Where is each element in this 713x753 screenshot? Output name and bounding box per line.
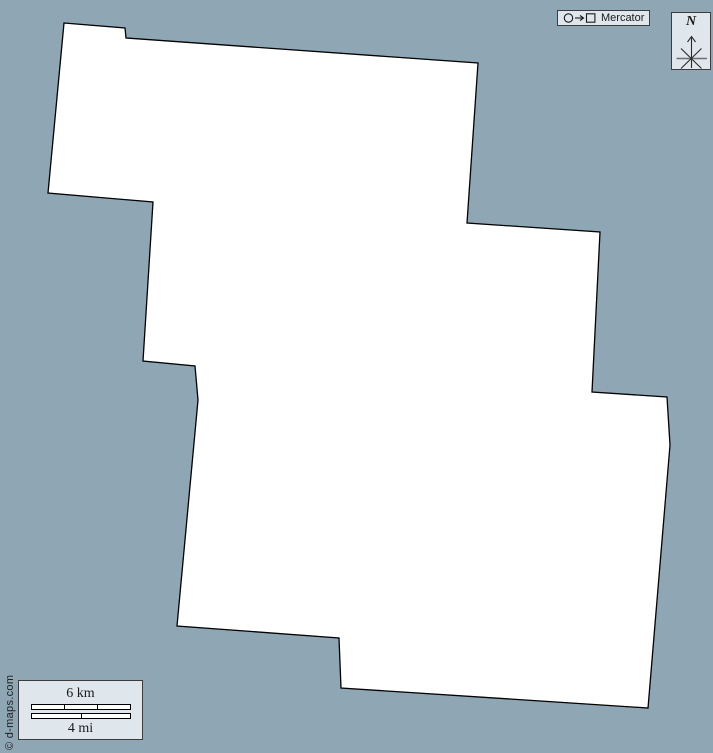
arrow-right-icon — [575, 16, 584, 21]
scale-bar-box: 6 km 4 mi — [18, 680, 143, 740]
compass-north-label: N — [672, 14, 710, 31]
projection-legend: Mercator — [557, 10, 650, 26]
scale-mi-label: 4 mi — [19, 722, 142, 736]
globe-circle-icon — [564, 14, 572, 22]
scale-km-label: 6 km — [19, 687, 142, 701]
scale-tick — [64, 705, 65, 709]
map-canvas: Mercator N 6 km 4 mi © d-maps.com — [0, 0, 713, 753]
projection-label: Mercator — [601, 13, 644, 24]
compass-box: N — [671, 12, 711, 70]
compass-rose-icon — [672, 31, 712, 71]
copyright-credit: © d-maps.com — [4, 675, 16, 750]
map-outline — [48, 23, 670, 708]
scale-bar-km — [31, 704, 131, 710]
scale-tick — [97, 705, 98, 709]
projection-symbol — [563, 12, 597, 24]
scale-tick — [81, 714, 82, 718]
square-plane-icon — [587, 14, 595, 22]
scale-bar-mi — [31, 713, 131, 719]
map-area — [0, 0, 713, 753]
